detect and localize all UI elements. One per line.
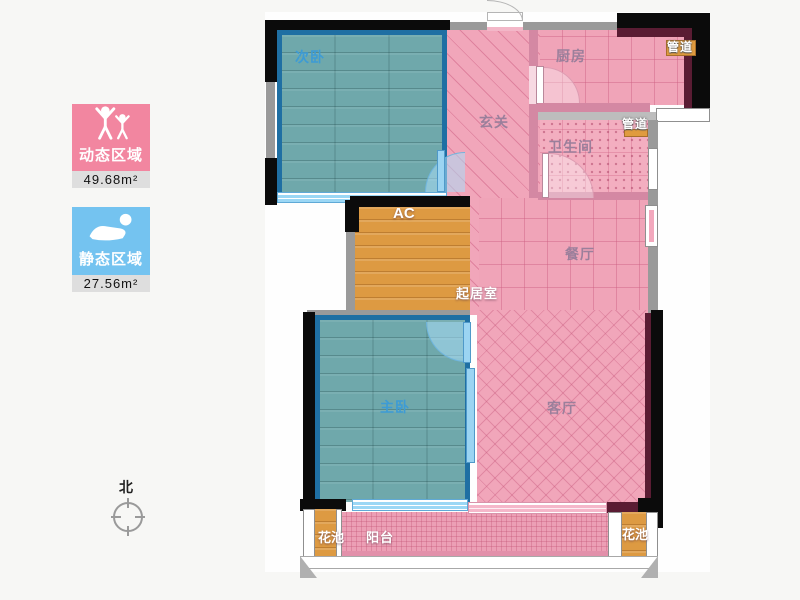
- master-bedroom-balcony-slider: [352, 499, 468, 511]
- master-bedroom-door: [463, 322, 471, 363]
- legend-static-label: 静态区域: [79, 248, 143, 269]
- balcony-corner-right: [641, 556, 658, 578]
- wall-kitchen-top-inner: [617, 28, 692, 37]
- wall-right-bath-lower: [648, 190, 658, 205]
- label-bathroom: 卫生间: [548, 137, 593, 157]
- wall-right-dining: [648, 247, 658, 313]
- label-master-bedroom: 主卧: [380, 397, 410, 417]
- duct-label-bathroom: 管道: [622, 115, 648, 132]
- label-living-core: 起居室: [456, 283, 498, 302]
- label-kitchen: 厨房: [556, 46, 586, 66]
- wall-bedroom2-left-upper: [265, 20, 277, 82]
- legend-dynamic-label: 动态区域: [79, 144, 143, 165]
- wall-balcony-top-right: [638, 498, 663, 513]
- kitchen-door: [536, 66, 544, 104]
- balcony-corner-left: [300, 556, 317, 578]
- master-bedroom-right-window: [466, 368, 475, 463]
- flowerbed-left-outer: [303, 509, 315, 557]
- window-bedroom2-left: [266, 82, 275, 158]
- window-dining-right-bar: [649, 210, 654, 242]
- living-balcony-slider: [468, 502, 607, 514]
- floorplan-stage: 动态区域 49.68m² 静态区域 27.56m² 北: [0, 0, 800, 600]
- wall-ac-left-corner: [345, 200, 359, 232]
- entry-door-sill: [487, 27, 523, 31]
- label-secondary-bedroom: 次卧: [295, 47, 325, 67]
- label-entrance-hall: 玄关: [479, 112, 509, 132]
- secondary-bedroom-door: [437, 150, 445, 192]
- label-dining-room: 餐厅: [565, 244, 595, 264]
- label-ac-shaft: AC: [393, 205, 415, 222]
- wall-ac-left: [346, 232, 355, 315]
- label-balcony: 阳台: [366, 527, 394, 546]
- wall-right-bath-upper: [648, 120, 658, 148]
- label-flowerbed-right: 花池: [622, 524, 648, 543]
- wall-top-mid: [450, 22, 617, 30]
- flowerbed-right-inner: [608, 512, 622, 557]
- label-flowerbed-left: 花池: [318, 527, 344, 546]
- window-kitchen-southeast: [656, 108, 710, 122]
- bathroom-door: [542, 153, 549, 198]
- compass-icon: [106, 483, 150, 539]
- room-dining: [479, 198, 649, 310]
- window-bathroom-right: [648, 148, 658, 190]
- legend-static-area: 27.56m²: [72, 275, 150, 292]
- legend-dynamic-box: 动态区域: [72, 104, 150, 171]
- entry-door-arc: [487, 0, 523, 21]
- wall-living-right: [651, 310, 663, 528]
- wall-bedroom2-left-lower: [265, 158, 277, 205]
- wall-top-left: [265, 20, 450, 30]
- label-living-room: 客厅: [547, 398, 577, 418]
- wall-hall-kitchen: [529, 30, 538, 198]
- wall-master-left: [303, 312, 315, 510]
- room-ac-shaft: [355, 207, 470, 315]
- legend-dynamic-area: 49.68m²: [72, 171, 150, 188]
- duct-label-top-right: 管道: [667, 38, 693, 55]
- crawling-person-icon: [83, 207, 139, 246]
- cheering-people-icon: [85, 104, 137, 142]
- balcony-parapet: [300, 556, 658, 569]
- legend-static-box: 静态区域: [72, 207, 150, 275]
- wall-kitchen-bottom: [538, 103, 650, 112]
